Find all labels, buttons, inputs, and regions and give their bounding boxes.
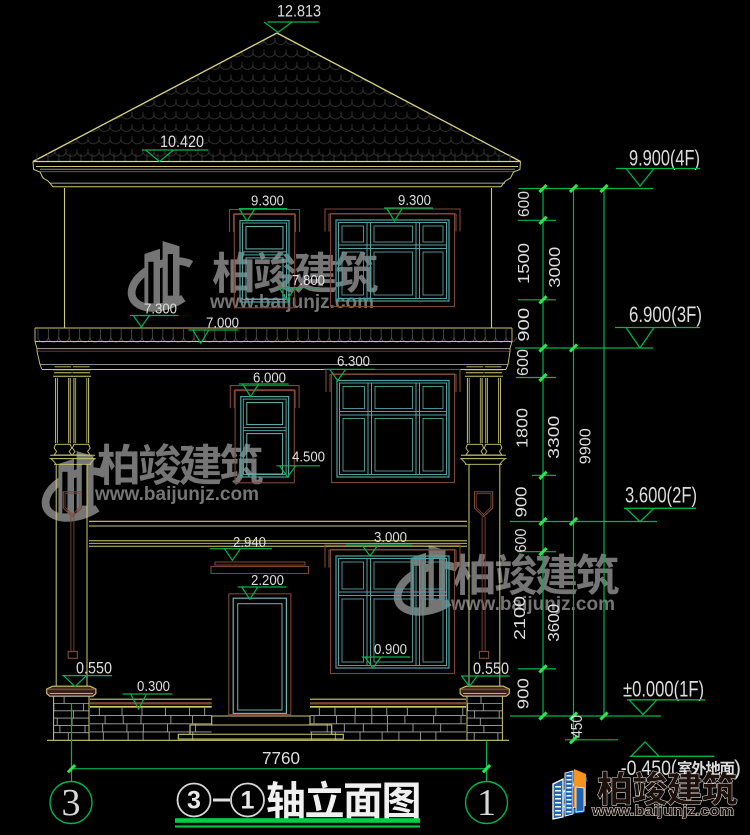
svg-text:600: 600 [515,349,532,376]
svg-text:4.500: 4.500 [292,449,325,466]
svg-text:2.200: 2.200 [251,572,284,589]
svg-text:6.000: 6.000 [253,370,286,387]
svg-text:3600: 3600 [546,604,563,642]
svg-text:9.300: 9.300 [251,193,284,210]
svg-text:450: 450 [569,715,586,738]
svg-text:900: 900 [516,308,533,342]
svg-text:3: 3 [187,787,201,815]
svg-text:2.940: 2.940 [233,534,266,551]
svg-text:0.900: 0.900 [374,641,407,658]
svg-text:9.300: 9.300 [398,192,431,209]
svg-text:3.600(2F): 3.600(2F) [625,483,697,508]
svg-text:www.baijunjz.com: www.baijunjz.com [450,594,615,615]
svg-text:7760: 7760 [262,748,300,768]
svg-text:0.550: 0.550 [76,659,112,678]
svg-text:www.baijunjz.com: www.baijunjz.com [94,484,259,505]
svg-text:3300: 3300 [546,416,563,459]
svg-text:1: 1 [241,787,255,815]
svg-text:0.300: 0.300 [137,678,170,695]
svg-text:7.800: 7.800 [292,272,325,289]
svg-text:0.550: 0.550 [473,659,509,678]
svg-text:900: 900 [514,487,531,518]
svg-text:3.000: 3.000 [374,529,407,546]
svg-text:1500: 1500 [516,243,533,284]
svg-text:±0.000(1F): ±0.000(1F) [623,677,704,702]
svg-text:6.900(3F): 6.900(3F) [629,302,702,327]
svg-text:1: 1 [477,782,496,824]
svg-text:12.813: 12.813 [277,3,321,21]
svg-text:9.900(4F): 9.900(4F) [629,146,700,171]
svg-text:10.420: 10.420 [160,133,204,151]
svg-text:1800: 1800 [515,408,532,448]
svg-text:3000: 3000 [547,247,564,288]
svg-text:3: 3 [62,782,81,824]
svg-text:600: 600 [513,529,530,553]
svg-text:2100: 2100 [512,596,529,640]
svg-text:7.300: 7.300 [144,301,177,318]
svg-text:900: 900 [516,678,533,709]
svg-text:www.baijunjz.com: www.baijunjz.com [591,804,734,820]
svg-text:9900: 9900 [578,428,595,464]
svg-text:6.300: 6.300 [337,353,370,370]
svg-text:600: 600 [516,191,533,217]
svg-text:7.000: 7.000 [206,315,239,332]
